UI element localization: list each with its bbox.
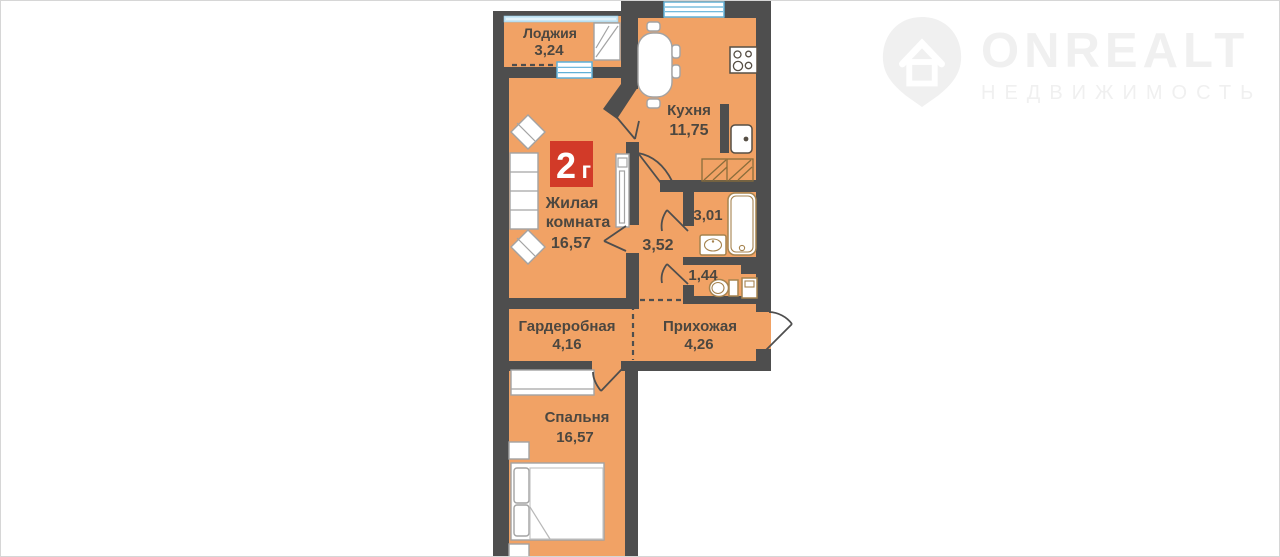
room-area-wardrobe: 4,16 (552, 336, 581, 353)
onrealt-watermark: ONREALT НЕДВИЖИМОСТЬ (877, 13, 1262, 109)
room-area-living: 16,57 (551, 235, 591, 252)
nightstand (509, 442, 529, 459)
room-label-living2: комната (546, 214, 611, 231)
room-area-corridor: 3,52 (642, 237, 673, 254)
floorplan-page: ONREALT НЕДВИЖИМОСТЬ (0, 0, 1280, 557)
plan-type-badge: 2 г (550, 141, 593, 187)
watermark-subtitle: НЕДВИЖИМОСТЬ (981, 82, 1262, 105)
room-area-bathroom: 3,01 (693, 207, 722, 224)
room-area-bedroom: 16,57 (556, 429, 594, 446)
room-label-wardrobe: Гардеробная (518, 318, 615, 335)
room-area-kitchen: 11,75 (669, 122, 708, 139)
nightstand (509, 544, 529, 557)
loggia-window (557, 62, 592, 78)
room-label-hallway: Прихожая (663, 318, 737, 335)
wardrobe-cabinet (616, 154, 629, 227)
loggia-glazing (504, 16, 618, 22)
room-area-loggia: 3,24 (534, 42, 564, 59)
room-label-loggia: Лоджия (523, 25, 577, 41)
bathtub (728, 193, 756, 255)
kitchen-window (664, 2, 724, 17)
bathroom-sink (700, 235, 726, 255)
floor-plan: 2 г Лоджия 3,24 Кухня 11,75 Жилая комнат… (489, 1, 801, 557)
stove (730, 47, 757, 73)
sofa (510, 153, 538, 229)
loggia-rack (594, 23, 620, 60)
room-label-bedroom: Спальня (545, 409, 610, 426)
bed (511, 463, 604, 540)
room-label-living: Жилая (545, 195, 599, 212)
room-label-kitchen: Кухня (667, 102, 711, 119)
room-area-toilet: 1,44 (688, 267, 718, 284)
room-area-hallway: 4,26 (684, 336, 713, 353)
watermark-title: ONREALT (981, 27, 1262, 76)
bedroom-wardrobe (511, 370, 594, 395)
onrealt-pin-icon (877, 13, 967, 109)
washer-box (742, 278, 757, 298)
kitchen-sink (731, 125, 752, 153)
